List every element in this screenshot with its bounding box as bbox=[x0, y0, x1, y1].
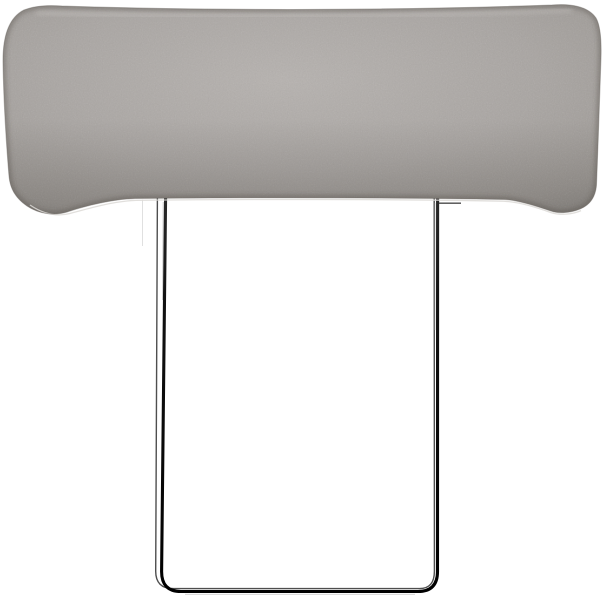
cushion-bottom-shading bbox=[3, 5, 601, 214]
product-photo bbox=[0, 0, 606, 600]
cushion bbox=[3, 5, 601, 215]
headrest-illustration bbox=[0, 0, 606, 600]
